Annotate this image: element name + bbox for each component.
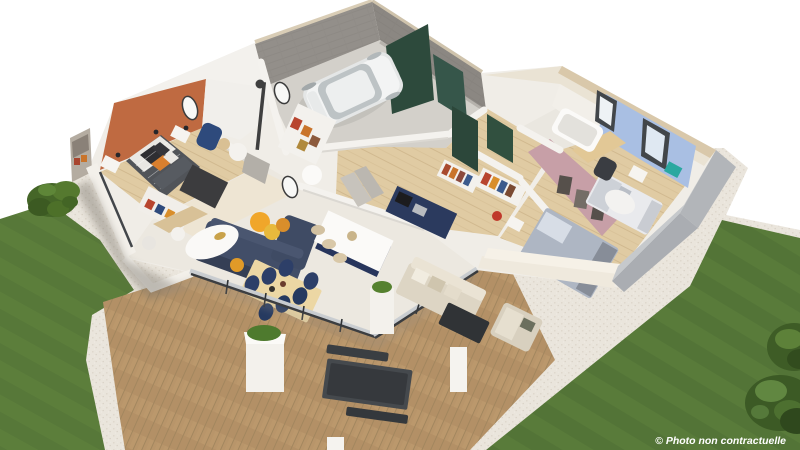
svg-text:© Photo non contractuelle: © Photo non contractuelle xyxy=(655,435,786,447)
